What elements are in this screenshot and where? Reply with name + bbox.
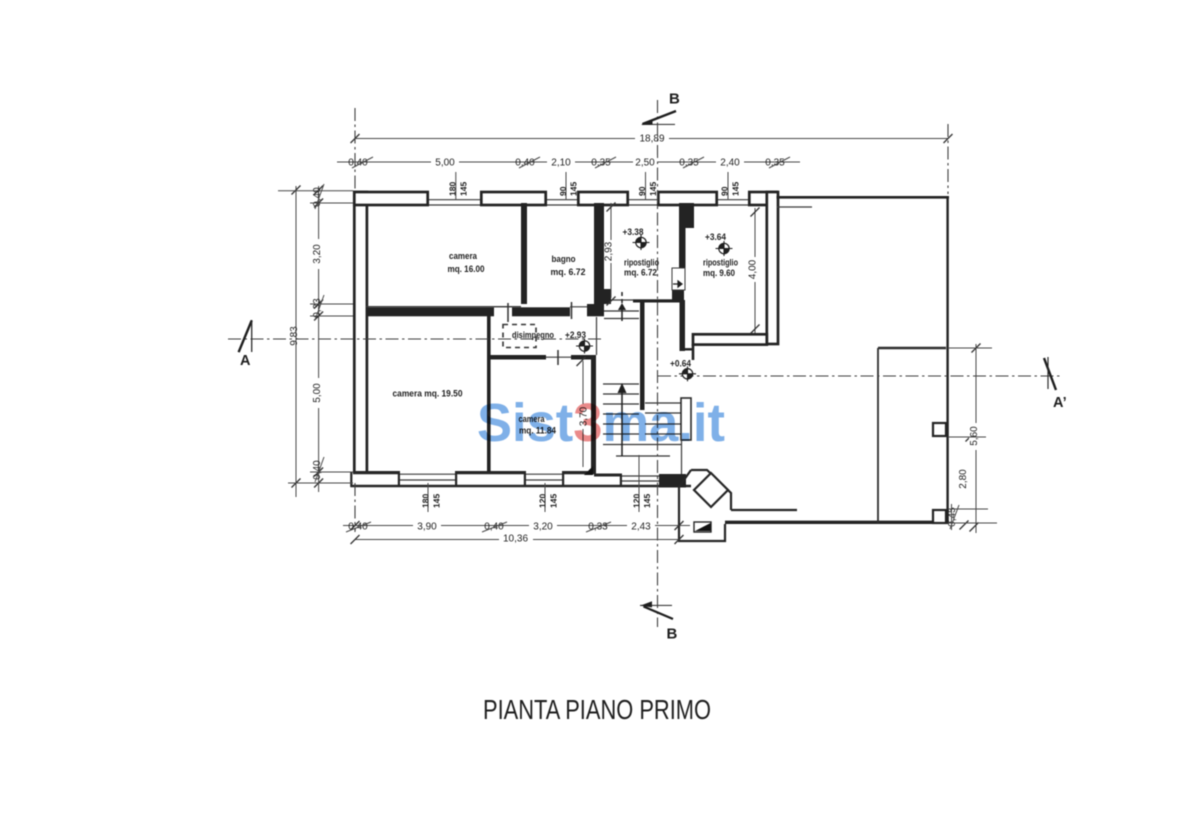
svg-text:120: 120 (538, 494, 548, 508)
svg-text:0,40: 0,40 (312, 460, 323, 480)
svg-text:0,40: 0,40 (348, 158, 368, 169)
svg-text:5,00: 5,00 (312, 383, 323, 403)
svg-text:90: 90 (558, 186, 568, 196)
svg-text:0,35: 0,35 (679, 158, 699, 169)
svg-text:+3.38: +3.38 (623, 227, 644, 238)
svg-text:180: 180 (421, 494, 431, 508)
svg-text:145: 145 (569, 182, 579, 196)
svg-text:3,20: 3,20 (533, 522, 553, 533)
svg-text:+0.64: +0.64 (670, 359, 692, 370)
svg-text:+2.93: +2.93 (565, 330, 586, 341)
svg-text:2,80: 2,80 (958, 469, 969, 489)
svg-text:+3.64: +3.64 (705, 232, 727, 243)
svg-text:disimpegno: disimpegno (512, 330, 554, 341)
svg-text:A’: A’ (1053, 395, 1067, 411)
svg-text:90: 90 (637, 186, 647, 196)
svg-text:145: 145 (432, 494, 442, 508)
svg-text:5,60: 5,60 (969, 426, 980, 446)
svg-text:145: 145 (648, 182, 658, 196)
svg-text:18,89: 18,89 (639, 134, 664, 145)
svg-text:B: B (669, 91, 680, 108)
svg-text:0,35: 0,35 (765, 158, 785, 169)
svg-text:3,90: 3,90 (417, 522, 437, 533)
svg-text:mq. 9.60: mq. 9.60 (703, 268, 735, 279)
svg-text:145: 145 (642, 494, 652, 508)
svg-text:10,36: 10,36 (503, 534, 528, 545)
svg-text:90: 90 (720, 186, 730, 196)
svg-text:mq. 6.72: mq. 6.72 (624, 268, 657, 279)
svg-text:3,20: 3,20 (312, 244, 323, 264)
svg-text:ripostiglio: ripostiglio (703, 258, 738, 269)
svg-text:120: 120 (632, 494, 642, 508)
svg-text:0,40: 0,40 (515, 158, 535, 169)
svg-text:4,00: 4,00 (748, 259, 759, 279)
svg-text:2,40: 2,40 (720, 158, 740, 169)
svg-text:2,43: 2,43 (631, 522, 651, 533)
svg-text:A: A (240, 353, 251, 369)
svg-text:mq. 6.72: mq. 6.72 (551, 267, 586, 278)
svg-text:2,93: 2,93 (604, 241, 615, 261)
svg-text:145: 145 (459, 182, 469, 196)
svg-text:145: 145 (731, 182, 741, 196)
svg-text:0,35: 0,35 (591, 158, 611, 169)
svg-text:Sist3ma.it: Sist3ma.it (477, 393, 725, 453)
svg-text:bagno: bagno (552, 254, 576, 265)
svg-text:PIANTA PIANO PRIMO: PIANTA PIANO PRIMO (483, 694, 711, 725)
svg-text:0,33: 0,33 (312, 298, 323, 318)
svg-text:5,00: 5,00 (435, 158, 455, 169)
svg-text:camera: camera (449, 251, 478, 262)
svg-text:camera mq. 19.50: camera mq. 19.50 (393, 389, 463, 400)
svg-text:2,10: 2,10 (551, 158, 571, 169)
svg-text:9,83: 9,83 (289, 326, 300, 346)
svg-text:B: B (667, 626, 678, 643)
svg-text:0,40: 0,40 (312, 187, 323, 207)
svg-text:180: 180 (448, 182, 458, 196)
svg-text:mq. 16.00: mq. 16.00 (448, 264, 485, 275)
svg-text:145: 145 (549, 494, 559, 508)
svg-text:2,50: 2,50 (635, 158, 655, 169)
